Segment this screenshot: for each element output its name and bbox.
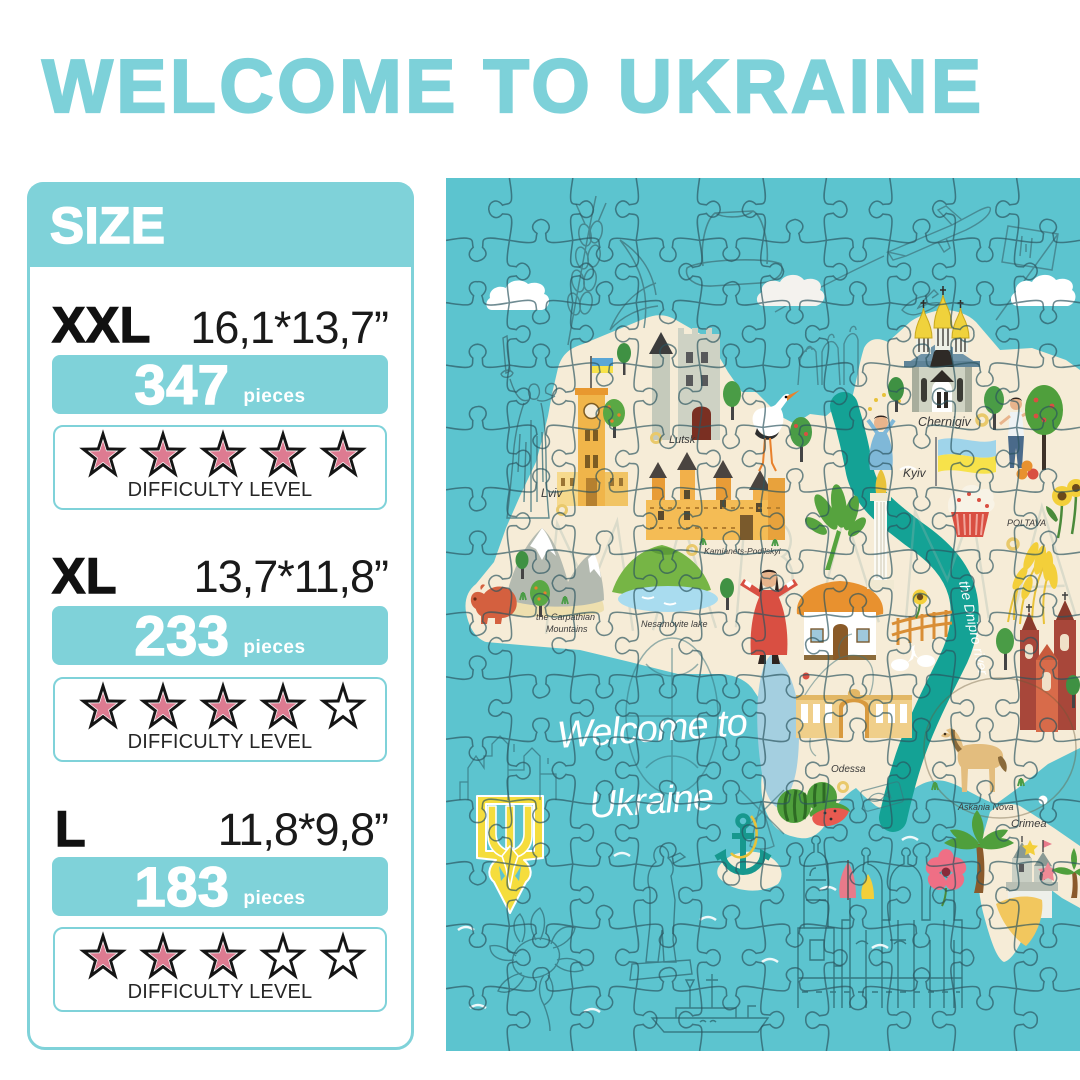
svg-text:Crimea: Crimea <box>1011 818 1046 830</box>
svg-text:Odessa: Odessa <box>831 764 866 775</box>
svg-text:POLTAVA: POLTAVA <box>1007 518 1046 528</box>
svg-text:the Carpathian: the Carpathian <box>536 612 595 622</box>
svg-text:Lviv: Lviv <box>541 486 563 500</box>
svg-text:Mountains: Mountains <box>546 624 588 634</box>
